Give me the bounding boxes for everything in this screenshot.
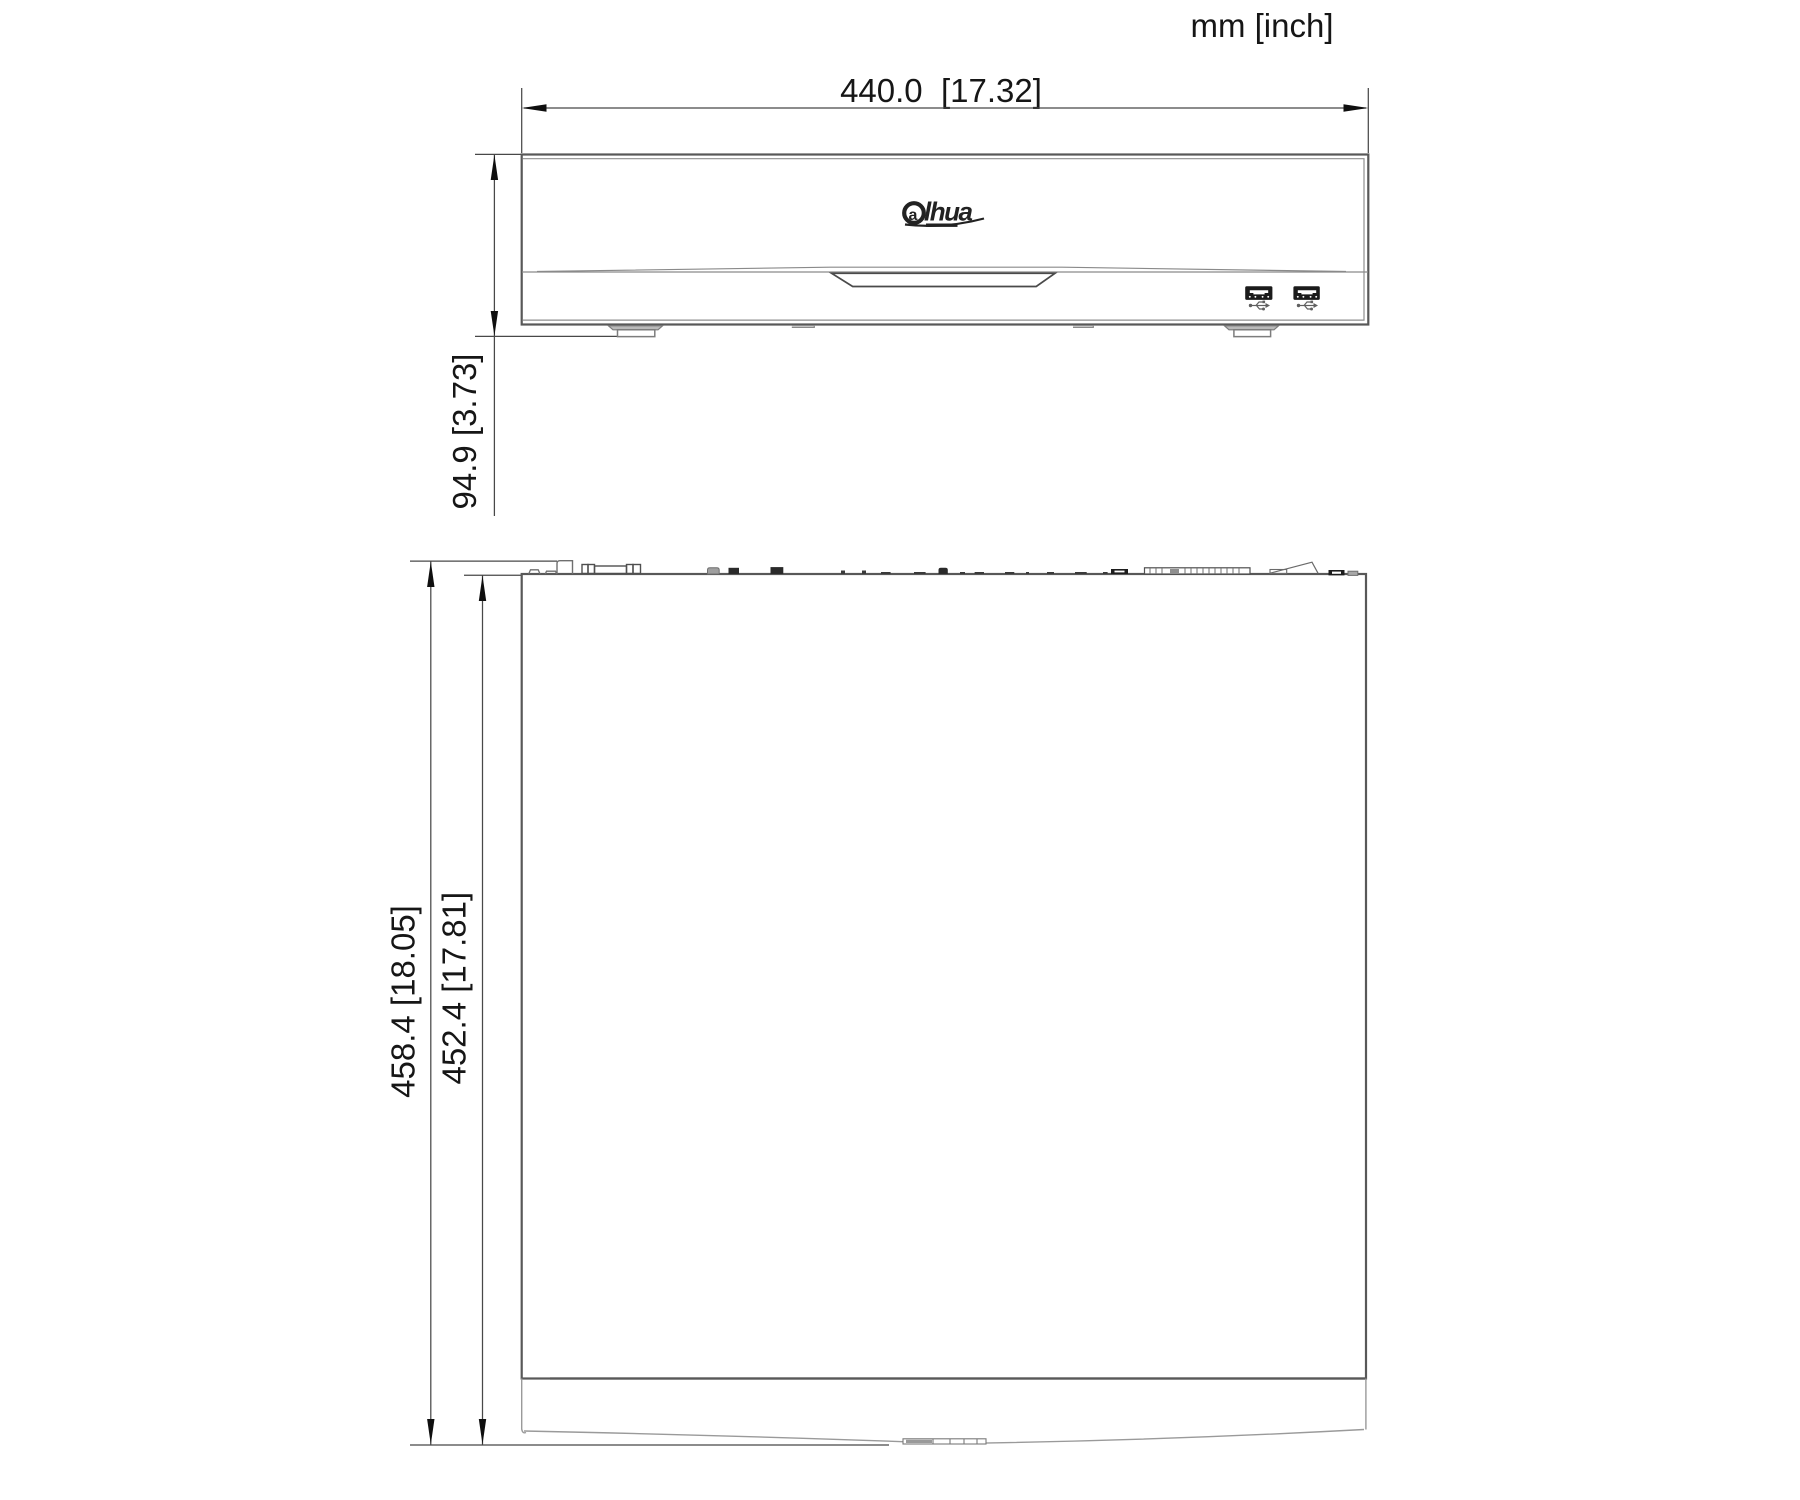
svg-text:a: a: [909, 207, 918, 224]
svg-text:94.9 [3.73]: 94.9 [3.73]: [446, 354, 483, 510]
svg-text:440.0 [17.32]: 440.0 [17.32]: [840, 72, 1042, 109]
svg-text:452.4 [17.81]: 452.4 [17.81]: [436, 892, 473, 1085]
svg-text:458.4 [18.05]: 458.4 [18.05]: [385, 905, 422, 1098]
svg-text:mm [inch]: mm [inch]: [1190, 7, 1333, 44]
